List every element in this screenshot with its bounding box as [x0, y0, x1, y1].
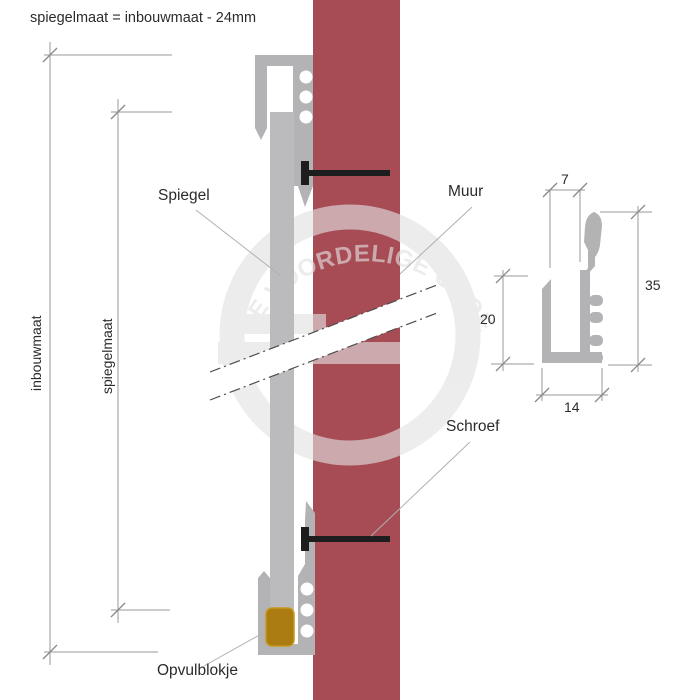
profile-tooth	[589, 335, 603, 346]
profile-detail-drawing	[542, 212, 603, 363]
dimension-ticks-detail	[496, 183, 645, 402]
profile-tooth	[589, 352, 603, 363]
formula-title: spiegelmaat = inbouwmaat - 24mm	[30, 10, 256, 26]
profile-hook	[580, 212, 602, 280]
label-schroef: Schroef	[446, 418, 499, 435]
label-opvulblokje: Opvulblokje	[157, 662, 238, 679]
label-muur: Muur	[448, 183, 483, 200]
serration-notch	[301, 583, 314, 596]
dimension-lines-detail	[491, 183, 652, 402]
label-spiegel: Spiegel	[158, 187, 210, 204]
dimension-value-inner-height: 20	[480, 311, 496, 327]
serration-notch	[300, 111, 313, 124]
dimension-label-spiegelmaat: spiegelmaat	[99, 319, 115, 395]
serration-notch	[300, 71, 313, 84]
mirror-mounting-diagram: DE VOORDELIGE GROEP	[0, 0, 700, 700]
dimension-value-bottom-width: 14	[564, 399, 580, 415]
serration-notch	[301, 604, 314, 617]
profile-tooth	[589, 312, 603, 323]
profile-tooth	[589, 295, 603, 306]
dimension-label-inbouwmaat: inbouwmaat	[28, 316, 44, 392]
serration-notch	[301, 625, 314, 638]
serration-notch	[300, 91, 313, 104]
dimension-value-top-width: 7	[561, 171, 569, 187]
filler-block	[266, 608, 294, 646]
dimension-value-total-height: 35	[645, 277, 661, 293]
